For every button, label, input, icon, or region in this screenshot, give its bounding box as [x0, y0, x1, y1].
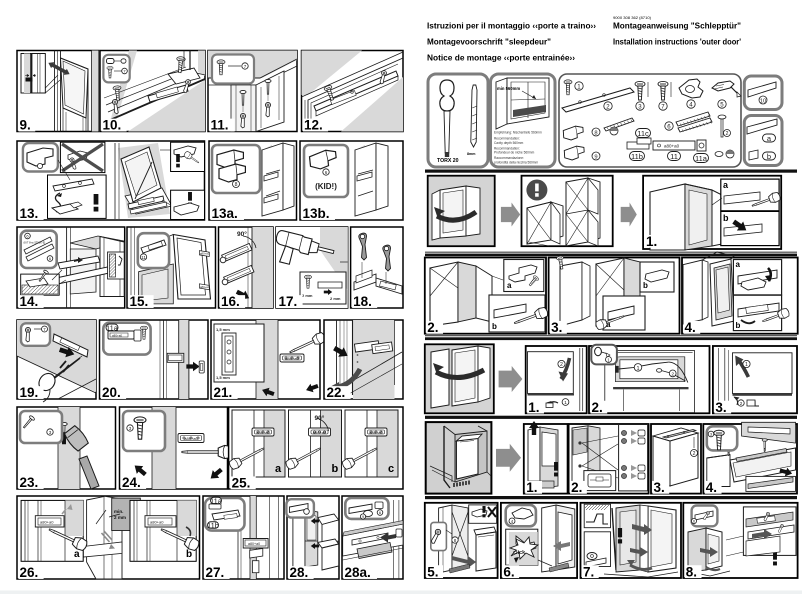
svg-text:12.: 12. [304, 118, 323, 133]
svg-text:28.: 28. [290, 565, 309, 580]
svg-text:8mm: 8mm [467, 152, 475, 156]
svg-text:8: 8 [454, 538, 457, 543]
svg-text:3.: 3. [654, 480, 665, 495]
svg-text:4.: 4. [706, 480, 717, 495]
svg-text:a80+a0: a80+a0 [200, 252, 210, 256]
svg-text:a80+a0: a80+a0 [184, 436, 198, 441]
svg-text:(KID!): (KID!) [315, 182, 337, 191]
svg-text:13b.: 13b. [303, 206, 330, 221]
svg-text:a80+a0: a80+a0 [313, 430, 327, 435]
svg-text:1.: 1. [646, 234, 657, 249]
svg-text:11c: 11c [637, 129, 649, 138]
svg-text:Istruzioni per il montaggio ‹‹: Istruzioni per il montaggio ‹‹porte a tr… [427, 22, 596, 31]
svg-text:b: b [186, 549, 192, 560]
svg-text:Installation instructions 'out: Installation instructions 'outer door' [613, 38, 741, 47]
svg-text:2: 2 [726, 131, 729, 137]
svg-text:b: b [332, 463, 339, 475]
svg-text:2.: 2. [427, 320, 438, 335]
svg-text:11a: 11a [106, 324, 119, 333]
svg-text:11a: 11a [210, 497, 223, 506]
svg-text:10: 10 [760, 98, 766, 104]
svg-text:Cavity depth 560mm: Cavity depth 560mm [494, 141, 524, 145]
svg-text:11b: 11b [207, 521, 219, 530]
svg-text:9.: 9. [20, 118, 31, 133]
svg-text:19.: 19. [20, 385, 39, 400]
svg-text:a80+a0: a80+a0 [664, 144, 680, 149]
svg-text:1,5 mm: 1,5 mm [216, 375, 230, 380]
svg-text:6: 6 [693, 520, 695, 524]
svg-text:1: 1 [564, 400, 567, 406]
svg-text:click: click [513, 550, 526, 556]
svg-text:1: 1 [636, 366, 639, 372]
svg-text:13.: 13. [20, 206, 39, 221]
svg-text:90°: 90° [315, 414, 325, 422]
svg-text:a80+a0: a80+a0 [150, 520, 164, 525]
svg-text:a: a [275, 463, 282, 475]
svg-text:18.: 18. [353, 294, 372, 309]
svg-text:Empfehlung: Nischentiefe 560mm: Empfehlung: Nischentiefe 560mm [494, 131, 542, 135]
svg-text:10.: 10. [103, 118, 122, 133]
svg-text:26.: 26. [20, 565, 39, 580]
svg-text:2.: 2. [571, 480, 582, 495]
svg-text:b: b [643, 281, 648, 290]
svg-text:15.: 15. [130, 294, 149, 309]
svg-text:min.: min. [114, 509, 123, 514]
svg-text:9000 308 362 (8710): 9000 308 362 (8710) [613, 16, 651, 20]
svg-text:a80+a0: a80+a0 [248, 542, 260, 546]
svg-text:2 mm: 2 mm [302, 293, 313, 298]
svg-text:7: 7 [244, 64, 247, 69]
svg-text:a: a [74, 549, 80, 560]
svg-text:2: 2 [693, 451, 696, 457]
svg-text:6.: 6. [503, 564, 514, 579]
svg-text:5.: 5. [427, 564, 438, 579]
svg-text:a80+a0: a80+a0 [285, 356, 299, 361]
svg-text:1,5 mm: 1,5 mm [216, 327, 230, 332]
svg-text:1.: 1. [528, 400, 539, 415]
svg-text:6: 6 [325, 170, 328, 175]
svg-text:8.: 8. [686, 564, 697, 579]
svg-text:8: 8 [235, 182, 238, 188]
svg-text:c: c [388, 463, 394, 475]
svg-text:Montageanweisung "Schlepptür": Montageanweisung "Schlepptür" [613, 22, 741, 31]
svg-text:8: 8 [594, 130, 597, 136]
svg-text:23.: 23. [20, 475, 39, 490]
svg-text:24.: 24. [122, 475, 141, 490]
svg-text:3: 3 [49, 430, 52, 435]
svg-text:(KIT 8+a STICK-E): (KIT 8+a STICK-E) [24, 241, 46, 245]
svg-text:3.: 3. [551, 320, 562, 335]
svg-text:min 560mm: min 560mm [497, 86, 520, 91]
svg-text:7.: 7. [583, 564, 594, 579]
svg-text:11.: 11. [211, 118, 229, 133]
svg-text:b: b [723, 213, 729, 223]
svg-text:a: a [507, 281, 512, 290]
svg-text:14.: 14. [20, 294, 39, 309]
svg-text:a: a [606, 320, 611, 329]
svg-text:Montagevoorschrift "sleepdeur": Montagevoorschrift "sleepdeur" [427, 38, 551, 47]
svg-text:Profondeur de niche 560mm: Profondeur de niche 560mm [494, 151, 535, 155]
svg-text:b: b [767, 152, 771, 161]
svg-text:2: 2 [671, 372, 674, 378]
svg-text:27.: 27. [206, 565, 225, 580]
svg-text:3: 3 [129, 426, 132, 431]
svg-text:2 mm: 2 mm [330, 296, 341, 301]
svg-text:22.: 22. [327, 385, 346, 400]
svg-text:11: 11 [141, 255, 146, 260]
svg-text:1.: 1. [526, 480, 537, 495]
svg-text:a80+a0: a80+a0 [256, 430, 270, 435]
svg-text:21.: 21. [214, 385, 233, 400]
svg-text:TORX 20: TORX 20 [437, 158, 459, 164]
svg-text:4.: 4. [685, 320, 696, 335]
svg-text:90°: 90° [237, 230, 247, 238]
svg-text:a: a [736, 260, 741, 269]
svg-text:3.: 3. [715, 400, 726, 415]
svg-text:11b: 11b [631, 152, 643, 161]
svg-text:2: 2 [740, 401, 743, 406]
svg-text:2 mm: 2 mm [114, 515, 126, 520]
svg-text:a80+a0: a80+a0 [200, 285, 210, 289]
svg-text:28a.: 28a. [345, 565, 371, 580]
svg-text:a80+a0: a80+a0 [112, 334, 122, 338]
svg-text:17.: 17. [279, 294, 298, 309]
svg-text:profondità della nicchia 560mm: profondità della nicchia 560mm [494, 160, 538, 164]
svg-text:2: 2 [560, 362, 563, 368]
svg-text:11: 11 [670, 152, 678, 161]
svg-text:20.: 20. [102, 385, 121, 400]
svg-text:b: b [736, 321, 741, 330]
svg-text:b: b [492, 322, 497, 331]
svg-text:13a.: 13a. [212, 206, 238, 221]
svg-text:a80+a0: a80+a0 [369, 430, 383, 435]
svg-text:25.: 25. [232, 476, 251, 491]
svg-text:Notice de montage ‹‹porte entr: Notice de montage ‹‹porte entrainée›› [427, 54, 575, 63]
svg-text:a80+a0: a80+a0 [40, 520, 54, 525]
svg-text:16.: 16. [221, 294, 240, 309]
svg-text:9: 9 [362, 515, 364, 519]
svg-text:2.: 2. [592, 400, 603, 415]
svg-text:11a: 11a [695, 154, 708, 163]
svg-text:1: 1 [745, 362, 748, 368]
svg-text:9: 9 [594, 154, 597, 160]
